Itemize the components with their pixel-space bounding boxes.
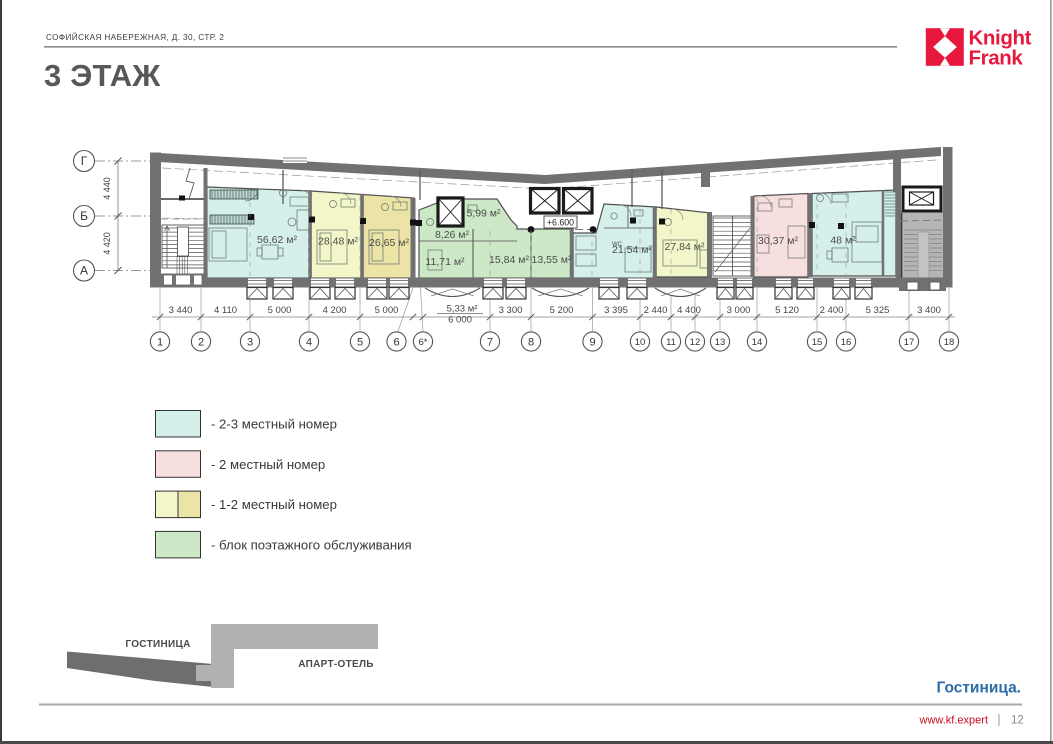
- svg-text:Гостиница.: Гостиница.: [936, 680, 1021, 697]
- svg-text:5 120: 5 120: [775, 305, 799, 316]
- svg-text:3 ЭТАЖ: 3 ЭТАЖ: [44, 58, 161, 93]
- svg-text:3 000: 3 000: [727, 305, 751, 316]
- svg-text:13,55 м²: 13,55 м²: [532, 254, 572, 266]
- svg-text:18: 18: [944, 337, 955, 348]
- svg-text:4 200: 4 200: [323, 305, 347, 316]
- svg-text:- блок поэтажного обслуживания: - блок поэтажного обслуживания: [211, 537, 412, 552]
- svg-text:4 400: 4 400: [677, 305, 701, 316]
- svg-text:5 200: 5 200: [550, 305, 574, 316]
- svg-text:1: 1: [157, 337, 163, 349]
- svg-text:21,54 м²: 21,54 м²: [612, 244, 652, 256]
- svg-text:3: 3: [247, 337, 253, 349]
- svg-text:15: 15: [812, 337, 823, 348]
- svg-text:СОФИЙСКАЯ НАБЕРЕЖНАЯ, Д. 30, С: СОФИЙСКАЯ НАБЕРЕЖНАЯ, Д. 30, СТР. 2: [46, 31, 224, 42]
- svg-text:26,65 м²: 26,65 м²: [369, 237, 409, 249]
- svg-text:2 440: 2 440: [644, 305, 668, 316]
- svg-text:2: 2: [198, 337, 204, 349]
- svg-text:5 325: 5 325: [866, 305, 890, 316]
- svg-text:11,71 м²: 11,71 м²: [425, 256, 465, 268]
- svg-text:5,99 м²: 5,99 м²: [466, 208, 501, 220]
- svg-text:Г: Г: [81, 154, 88, 168]
- svg-text:А: А: [80, 264, 88, 278]
- svg-text:6: 6: [393, 337, 399, 349]
- svg-text:5 000: 5 000: [268, 305, 292, 316]
- svg-text:8: 8: [528, 337, 534, 349]
- svg-text:13: 13: [715, 337, 726, 348]
- svg-text:12: 12: [1011, 715, 1024, 727]
- svg-text:4: 4: [306, 337, 312, 349]
- svg-text:www.kf.expert: www.kf.expert: [919, 715, 988, 727]
- svg-text:30,37 м²: 30,37 м²: [758, 235, 798, 247]
- svg-text:3 395: 3 395: [604, 305, 628, 316]
- svg-text:- 2-3 местный номер: - 2-3 местный номер: [211, 417, 337, 432]
- svg-text:4 110: 4 110: [214, 305, 237, 316]
- svg-text:9: 9: [589, 337, 595, 349]
- svg-text:16: 16: [841, 337, 852, 348]
- svg-text:4 440: 4 440: [102, 177, 112, 200]
- svg-text:5 000: 5 000: [375, 305, 399, 316]
- svg-text:2 400: 2 400: [820, 305, 844, 316]
- svg-text:11: 11: [666, 337, 676, 348]
- svg-text:АПАРТ-ОТЕЛЬ: АПАРТ-ОТЕЛЬ: [298, 659, 374, 670]
- svg-text:6 000: 6 000: [448, 315, 472, 326]
- svg-text:7: 7: [487, 337, 493, 349]
- svg-text:10: 10: [635, 337, 646, 348]
- svg-text:15,84 м²: 15,84 м²: [489, 254, 529, 266]
- svg-text:Frank: Frank: [969, 47, 1024, 70]
- svg-text:- 1-2 местный номер: - 1-2 местный номер: [211, 497, 337, 512]
- svg-text:12: 12: [690, 337, 701, 348]
- svg-text:5: 5: [357, 337, 363, 349]
- svg-text:3 300: 3 300: [499, 305, 523, 316]
- svg-text:56,62 м²: 56,62 м²: [257, 234, 297, 246]
- svg-text:4 420: 4 420: [102, 232, 112, 255]
- svg-text:28,48 м²: 28,48 м²: [318, 236, 358, 248]
- svg-text:27,84 м²: 27,84 м²: [665, 241, 705, 253]
- svg-text:3 400: 3 400: [917, 305, 941, 316]
- svg-text:- 2 местный номер: - 2 местный номер: [211, 457, 325, 472]
- svg-text:5,33 м²: 5,33 м²: [447, 304, 478, 315]
- svg-text:14: 14: [752, 337, 763, 348]
- svg-text:+6.600: +6.600: [547, 217, 574, 227]
- svg-text:48 м²: 48 м²: [830, 235, 856, 247]
- svg-text:8,26 м²: 8,26 м²: [435, 229, 470, 241]
- svg-text:Б: Б: [80, 209, 88, 223]
- svg-text:ГОСТИНИЦА: ГОСТИНИЦА: [125, 639, 190, 650]
- svg-text:3 440: 3 440: [169, 305, 193, 316]
- svg-text:6*: 6*: [419, 337, 428, 348]
- svg-text:17: 17: [904, 337, 915, 348]
